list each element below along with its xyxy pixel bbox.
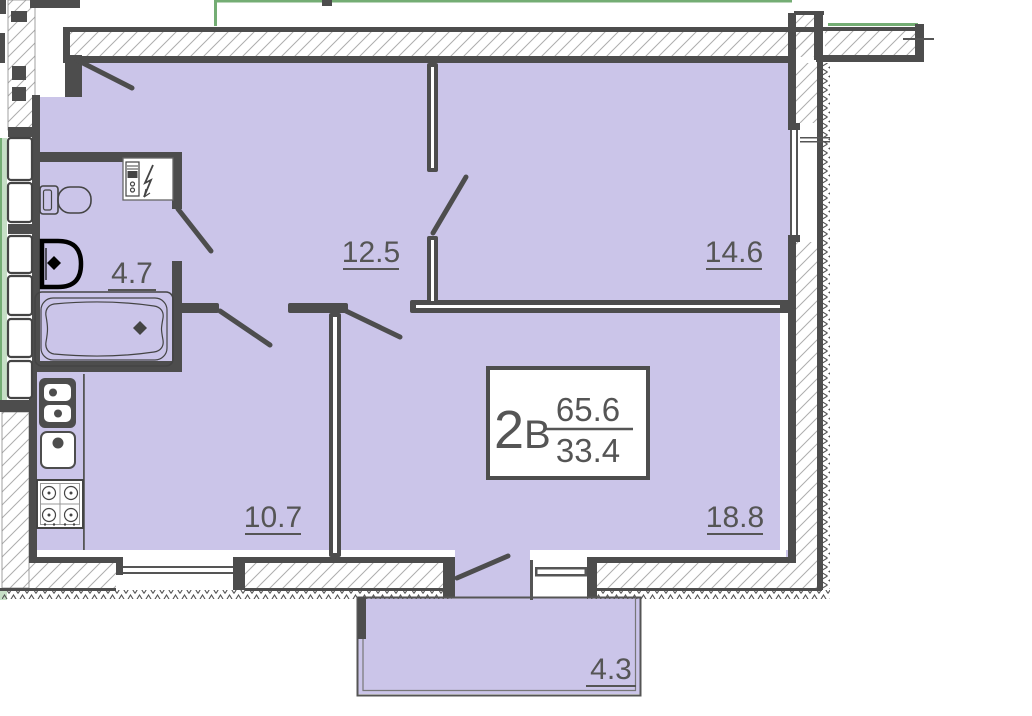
- bedroom-window-jamb-top: [788, 123, 800, 130]
- bottom-wall-inner-1: [29, 557, 116, 563]
- topright-outer-edge: [823, 27, 922, 31]
- kitchen-sink-icon: [39, 378, 76, 468]
- svg-text:12.5: 12.5: [342, 236, 400, 269]
- leader-tick: [903, 38, 934, 40]
- partition-core: [431, 67, 434, 168]
- balcony-window-glass: [535, 567, 587, 570]
- floorplan-canvas: 2В 65.6 33.4 4.7 12.5 14.6 10.7 18.8 4.3: [0, 0, 1032, 716]
- vent-cell: [8, 183, 32, 222]
- bedroom-window-sill: [800, 137, 830, 139]
- partition-core: [416, 305, 780, 308]
- vent-cell: [8, 236, 32, 273]
- floor-plan: 2В 65.6 33.4 4.7 12.5 14.6 10.7 18.8 4.3: [0, 0, 1032, 716]
- svg-text:4.7: 4.7: [111, 257, 153, 290]
- bedroom-window-sill: [800, 141, 830, 143]
- left-wall-cap: [0, 400, 33, 412]
- topright-notch-hatch: [796, 13, 816, 57]
- neighbor-wall-tick: [322, 0, 332, 6]
- room-label-living-room: 18.8: [706, 501, 764, 534]
- stair-pier: [12, 66, 26, 80]
- top-wall-inner-edge: [65, 56, 790, 63]
- neighbor-topright-border: [828, 23, 918, 26]
- room-label-hallway: 12.5: [342, 236, 400, 269]
- stair-pier: [11, 11, 27, 22]
- bottom-wall-inner-2: [245, 557, 443, 563]
- electrical-shaft: [123, 158, 173, 200]
- right-wall-inner-upper: [788, 57, 796, 123]
- svg-text:4.3: 4.3: [590, 653, 632, 686]
- kitchen-window-glass: [123, 572, 233, 574]
- svg-text:18.8: 18.8: [706, 501, 764, 534]
- unit-total-area: 65.6: [556, 391, 620, 428]
- top-wall-outer-edge: [65, 27, 818, 32]
- kitchen-window-glass: [123, 566, 233, 568]
- right-wall-hatch-lower: [796, 242, 820, 563]
- partition-hall-kitchen-left: [177, 303, 219, 313]
- room-area-kitchen-living: [37, 305, 788, 557]
- unit-info-box: 2В 65.6 33.4: [488, 368, 648, 478]
- right-wall-inner-lower: [788, 242, 796, 563]
- balcony-window-glass: [535, 574, 587, 577]
- bedroom-window-jamb-bottom: [788, 235, 800, 242]
- bottom-wall-hatch-1: [29, 563, 116, 590]
- vent-cell: [8, 319, 32, 357]
- kitchen-window-jamb-right: [233, 557, 245, 590]
- vent-cell: [8, 361, 32, 398]
- bottom-wall-outer-1: [0, 588, 116, 591]
- partition-core: [431, 240, 434, 301]
- bathroom-left-wall: [32, 95, 40, 372]
- neighbor-top-border: [214, 0, 792, 3]
- bottom-wall-hatch-2: [245, 563, 443, 590]
- unit-living-area: 33.4: [556, 432, 620, 469]
- balcony-door-jamb-right: [530, 560, 533, 600]
- bottomleft-wall-hatch: [2, 412, 29, 588]
- stair-pier: [0, 0, 6, 14]
- bottom-wall-outer-3: [587, 588, 822, 591]
- top-wall-hatch: [70, 32, 818, 56]
- kitchen-window-jamb-left: [116, 557, 123, 575]
- notch-right-edge: [814, 13, 823, 60]
- svg-text:10.7: 10.7: [244, 501, 302, 534]
- bottom-wall-inner-3: [597, 557, 792, 563]
- right-wall-hatch-upper: [796, 63, 820, 123]
- balcony-wall-stub: [358, 597, 366, 639]
- svg-text:14.6: 14.6: [705, 236, 763, 269]
- room-label-kitchen: 10.7: [244, 501, 302, 534]
- topright-cap: [915, 24, 924, 62]
- stair-top-bar: [30, 0, 80, 8]
- neighbor-left-border: [214, 0, 217, 26]
- room-label-bedroom: 14.6: [705, 236, 763, 269]
- bottom-wall-hatch-3: [597, 563, 820, 590]
- sill-gap: [37, 550, 786, 557]
- right-wall-outer: [817, 57, 823, 590]
- partition-core: [333, 317, 337, 553]
- vent-cell: [8, 138, 32, 180]
- partition-hall-kitchen-mid: [288, 303, 348, 313]
- notch-left-edge: [788, 13, 796, 63]
- neighbor-left-strip-border: [0, 138, 2, 400]
- balcony-window-tick: [535, 567, 538, 577]
- bottom-wall-outer-2: [245, 588, 455, 591]
- stair-pier: [12, 87, 26, 101]
- topright-inner-edge: [816, 55, 922, 62]
- vent-divider: [8, 224, 32, 234]
- bedroom-window-glass: [790, 130, 792, 235]
- stove-icon: [37, 480, 83, 528]
- topright-wall-hatch: [825, 31, 916, 55]
- room-label-bathroom: 4.7: [108, 257, 156, 290]
- sill-gap-right: [780, 313, 788, 550]
- bedroom-window-glass: [796, 130, 798, 235]
- vent-cell: [8, 276, 32, 315]
- room-label-balcony: 4.3: [586, 653, 636, 686]
- balcony-window-tick: [585, 567, 588, 577]
- notch-top-edge: [794, 11, 824, 15]
- stair-pier: [0, 33, 5, 63]
